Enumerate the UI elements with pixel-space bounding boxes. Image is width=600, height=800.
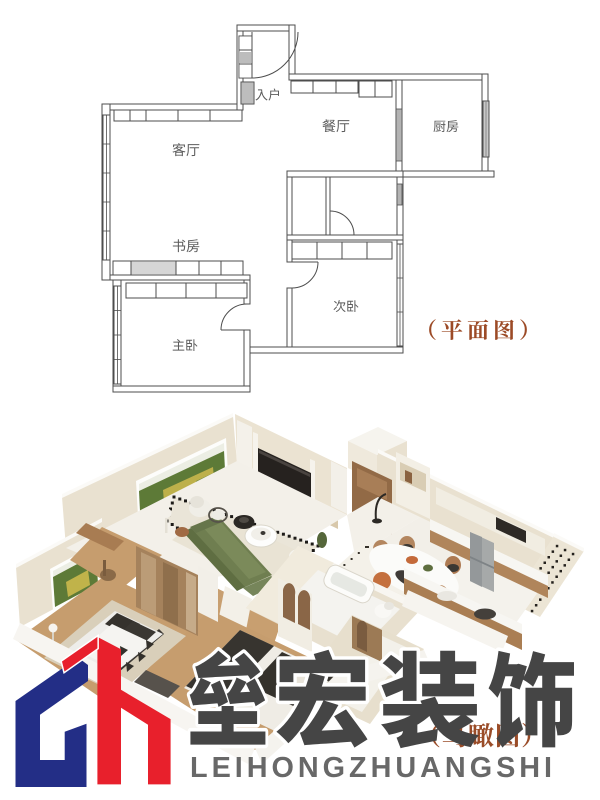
svg-text:LEIHONGZHUANGSHI: LEIHONGZHUANGSHI: [190, 752, 556, 784]
